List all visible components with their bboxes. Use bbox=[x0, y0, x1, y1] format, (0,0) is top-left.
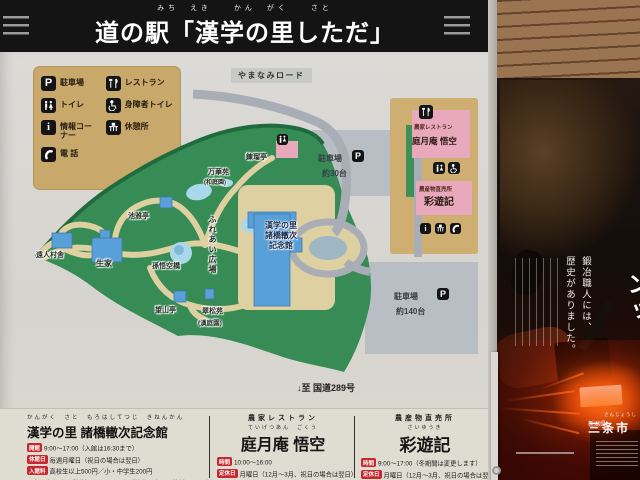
toilet-icon bbox=[277, 134, 288, 145]
memorial-hall-label-line2: 諸橋轍次 bbox=[250, 231, 312, 241]
toilet-icon bbox=[433, 162, 445, 174]
poster-fine-text bbox=[515, 258, 559, 346]
info-tag: 定休日 bbox=[217, 469, 238, 478]
oval-pond bbox=[309, 236, 347, 260]
panel-shop-type: 農産物直売所 bbox=[419, 185, 452, 193]
info-row: 時間10:00～16:00 bbox=[217, 457, 349, 467]
info-text: 毎週月曜日（祝日の場合は翌日） bbox=[50, 457, 144, 464]
site-label-bankaen-note: (和庭園) bbox=[204, 177, 226, 186]
site-label-rengatei: 錬瑠亭 bbox=[246, 152, 267, 162]
poster-paragraph-lines bbox=[596, 438, 638, 466]
site-label-songokubashi: 孫悟空橋 bbox=[152, 261, 180, 271]
info-title-furigana: さいゆうき bbox=[361, 424, 489, 431]
poster-city-furigana: さんじょうし bbox=[604, 412, 637, 418]
parking-icon: P bbox=[352, 150, 364, 162]
parking-bottom-label: 駐車場 bbox=[394, 291, 418, 302]
parking-top-capacity: 約30台 bbox=[322, 168, 347, 179]
memorial-hall-label-line1: 漢学の里 bbox=[250, 221, 312, 231]
info-title: 彩遊記 bbox=[361, 431, 489, 456]
title-furigana: みち えき かん がく さと bbox=[0, 3, 490, 13]
header-band: みち えき かん がく さと 道の駅「漢学の里しただ」 bbox=[0, 0, 490, 52]
restaurant-icon bbox=[419, 105, 433, 119]
site-label-suishoen: 翠松苑 bbox=[202, 306, 223, 316]
blacksmith-poster: 鍛冶職人には、 歴史がありました。 ンッ さんじょうし 新潟県 三条市 bbox=[497, 78, 640, 480]
info-text: 月曜日（12月～3月、祝日の場合は翌日） bbox=[384, 472, 502, 479]
site-label-bankaen: 万華苑 bbox=[208, 167, 229, 177]
wood-wall bbox=[497, 0, 640, 80]
site-label-suishoen-note: (漢庭園) bbox=[198, 317, 222, 327]
info-row: 定休日月曜日（12月～3月、祝日の場合は翌日） bbox=[361, 470, 489, 480]
enjin-sonsha-building bbox=[52, 233, 72, 248]
info-tag: 定休日 bbox=[361, 470, 382, 479]
phone-icon bbox=[450, 223, 461, 234]
rest-area-icon bbox=[435, 223, 446, 234]
info-text: 高校生以上500円／小・中学生200円 bbox=[50, 469, 153, 476]
info-tag: 休館日 bbox=[27, 455, 48, 464]
poster-slogan-line2: 歴史がありました。 bbox=[562, 256, 576, 381]
info-row: 入館料高校生以上500円／小・中学生200円 bbox=[27, 466, 207, 476]
chigatei-building bbox=[160, 197, 172, 208]
poster-url-line bbox=[516, 452, 574, 454]
info-tag: 時間 bbox=[361, 458, 376, 467]
seika-annex bbox=[100, 230, 110, 238]
signboard-photo: みち えき かん がく さと 道の駅「漢学の里しただ」 P 駐車場 レストラン … bbox=[0, 0, 640, 480]
info-row: 開館9:00～17:00（入館は16:30まで） bbox=[27, 443, 207, 453]
site-label-fureai-hiroba: ふれあい広場 bbox=[207, 215, 218, 275]
info-column-memorial: かんがく さと もろはしてつじ きねんかん 漢学の里 諸橋轍次記念館 開館9:0… bbox=[27, 413, 207, 480]
parking-top-label: 駐車場 bbox=[318, 153, 342, 164]
site-label-seika: 生家 bbox=[96, 258, 112, 269]
info-subtitle: 農家レストラン bbox=[217, 413, 349, 423]
column-divider bbox=[354, 416, 355, 478]
parking-bottom-capacity: 約140台 bbox=[396, 306, 425, 317]
poster-partial-title: ンッ bbox=[620, 272, 640, 326]
panel-restaurant-name: 庭月庵 悟空 bbox=[412, 135, 457, 147]
info-text: 9:00～17:00（冬期間は変更します） bbox=[378, 461, 482, 468]
wheelchair-icon bbox=[448, 162, 460, 174]
info-text: 月曜日（12月～3月、祝日の場合は翌日） bbox=[240, 471, 358, 478]
info-title: 庭月庵 悟空 bbox=[217, 431, 349, 455]
info-row: 時間9:00～17:00（冬期間は変更します） bbox=[361, 458, 489, 468]
info-subtitle: 農産物直売所 bbox=[361, 413, 489, 423]
route-note: ↓至 国道289号 bbox=[297, 381, 355, 394]
info-title: 漢学の里 諸橋轍次記念館 bbox=[27, 422, 207, 441]
poster-curled-edge bbox=[491, 352, 498, 480]
memorial-hall-label: 漢学の里 諸橋轍次 記念館 bbox=[250, 221, 312, 251]
info-text: 9:00～17:00（入館は16:30まで） bbox=[44, 446, 138, 453]
info-text: 10:00～16:00 bbox=[234, 460, 272, 467]
info-row: 定休日月曜日（12月～3月、祝日の場合は翌日） bbox=[217, 469, 349, 479]
panel-shop-name: 彩遊記 bbox=[424, 193, 454, 208]
road-name-label: やまなみロード bbox=[231, 68, 312, 83]
info-tag: 入館料 bbox=[27, 466, 48, 475]
column-divider bbox=[209, 416, 210, 478]
pond-songoku-inner bbox=[174, 245, 184, 255]
site-label-enjin-sonsha: 遠人村舎 bbox=[36, 250, 64, 260]
site-label-bozantei: 望山亭 bbox=[155, 305, 176, 315]
panel-restaurant-type: 農家レストラン bbox=[414, 123, 453, 131]
poster-city: 三条市 bbox=[588, 419, 630, 436]
bozantei-building bbox=[174, 291, 186, 302]
info-title-furigana: かんがく さと もろはしてつじ きねんかん bbox=[27, 413, 207, 421]
memorial-hall-label-line3: 記念館 bbox=[250, 241, 312, 251]
poster-grommet bbox=[492, 466, 501, 475]
info-title-furigana: ていげつあん ごくう bbox=[217, 424, 349, 431]
poster-slogan-line1: 鍛冶職人には、 bbox=[578, 256, 592, 381]
blacksmith-figure bbox=[500, 80, 640, 260]
info-tag: 時間 bbox=[217, 457, 232, 466]
suishoen-building bbox=[205, 289, 214, 299]
info-row: 休館日毎週月曜日（祝日の場合は翌日） bbox=[27, 455, 207, 465]
info-tag: 開館 bbox=[27, 443, 42, 452]
parking-icon: P bbox=[437, 288, 449, 300]
info-icon: i bbox=[420, 223, 431, 234]
info-column-restaurant: 農家レストラン ていげつあん ごくう 庭月庵 悟空 時間10:00～16:00 … bbox=[217, 413, 349, 478]
page-title: 道の駅「漢学の里しただ」 bbox=[0, 13, 490, 48]
poster-slogan: 鍛冶職人には、 歴史がありました。 bbox=[560, 256, 594, 381]
info-column-shop: 農産物直売所 さいゆうき 彩遊記 時間9:00～17:00（冬期間は変更します）… bbox=[361, 413, 489, 479]
site-label-chigatei: 池雅亭 bbox=[128, 211, 149, 221]
